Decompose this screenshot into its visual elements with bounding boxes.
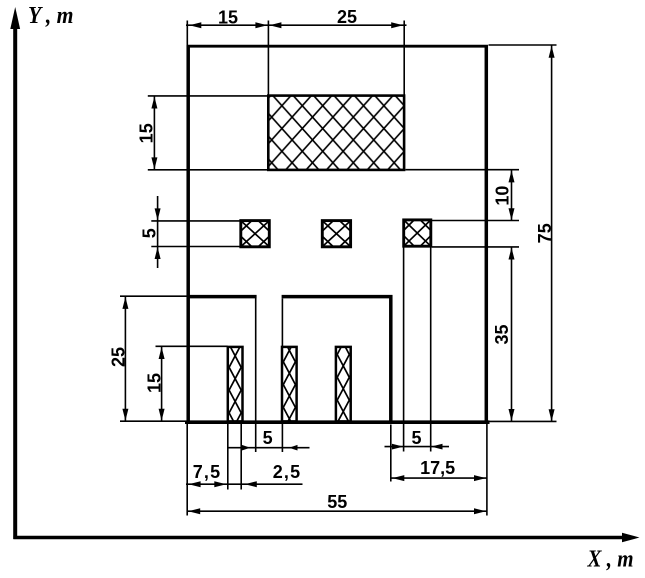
- svg-text:17,5: 17,5: [420, 458, 455, 478]
- svg-text:35: 35: [492, 324, 512, 344]
- svg-text:15: 15: [218, 7, 238, 27]
- svg-text:7,5: 7,5: [193, 462, 222, 482]
- svg-text:55: 55: [327, 492, 347, 512]
- svg-text:2,5: 2,5: [273, 462, 302, 482]
- svg-text:10: 10: [492, 186, 512, 206]
- svg-text:75: 75: [535, 223, 555, 243]
- svg-text:5: 5: [139, 228, 159, 238]
- svg-text:5: 5: [263, 428, 273, 448]
- svg-text:25: 25: [109, 347, 129, 367]
- svg-text:15: 15: [145, 373, 165, 393]
- svg-text:25: 25: [337, 7, 357, 27]
- svg-text:5: 5: [411, 428, 421, 448]
- svg-text:15: 15: [136, 123, 156, 143]
- svg-text:X , m: X , m: [587, 547, 634, 573]
- svg-text:Y , m: Y , m: [28, 3, 74, 29]
